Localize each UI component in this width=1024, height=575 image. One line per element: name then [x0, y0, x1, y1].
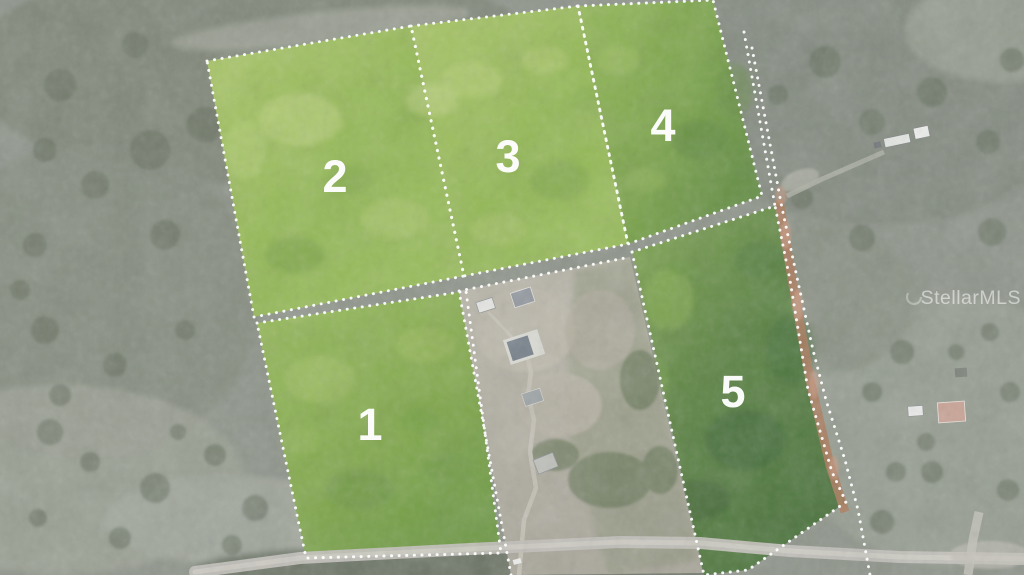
lot-number-2: 2	[322, 151, 347, 202]
aerial-photo-canvas: 1 2 3 4 5 StellarMLS	[0, 0, 1024, 575]
lot-number-1: 1	[357, 399, 382, 450]
watermark-text: StellarMLS	[921, 287, 1021, 309]
watermark: StellarMLS	[907, 287, 1021, 309]
aerial-lot-photo: 1 2 3 4 5 StellarMLS	[0, 0, 1024, 575]
lot-number-5: 5	[720, 366, 745, 417]
lot-number-3: 3	[495, 131, 520, 182]
noise-fine	[0, 0, 1024, 575]
lot-number-4: 4	[650, 100, 675, 151]
